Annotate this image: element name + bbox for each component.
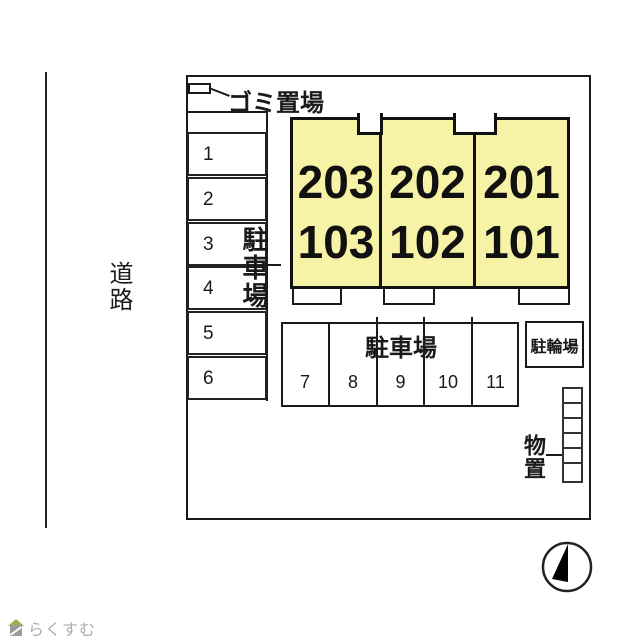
divider-tick xyxy=(376,317,378,323)
parking-space-11: 11 xyxy=(472,372,519,393)
storage-label: 物置 xyxy=(517,434,549,480)
parking-space-9: 9 xyxy=(377,372,424,393)
building-porch xyxy=(518,289,570,305)
divider-tick xyxy=(423,317,425,323)
bicycle-parking-box: 駐輪場 xyxy=(525,321,584,368)
lower-parking-label: 駐車場 xyxy=(331,328,471,363)
unit-number-202: 202 xyxy=(382,158,473,206)
parking-space-8: 8 xyxy=(329,372,377,393)
parking-divider xyxy=(471,323,473,406)
parking-space-10: 10 xyxy=(424,372,472,393)
building-porch xyxy=(383,289,435,305)
parking-space-number: 2 xyxy=(203,189,214,211)
unit-number-101: 101 xyxy=(476,218,567,266)
unit-number-201: 201 xyxy=(476,158,567,206)
road-label: 道路 xyxy=(101,261,136,313)
parking-divider xyxy=(328,323,330,406)
parking-space-6: 6 xyxy=(187,356,267,400)
parking-space-number: 6 xyxy=(203,368,214,390)
parking-space-number: 5 xyxy=(203,323,214,345)
parking-space-number: 1 xyxy=(203,144,214,166)
unit-number-103: 103 xyxy=(293,218,379,266)
logo-text: らくすむ xyxy=(28,616,96,640)
left-parking-label: 駐車場 xyxy=(236,226,273,310)
storage-cell xyxy=(562,462,583,483)
site-plan: 道路 ゴミ置場 1 2 3 4 5 6 駐車場 203 103 202 102 … xyxy=(0,0,640,640)
parking-space-2: 2 xyxy=(187,177,267,221)
site-logo: らくすむ xyxy=(8,616,96,640)
building-entry-notch xyxy=(453,113,497,135)
unit-number-102: 102 xyxy=(382,218,473,266)
parking-space-number: 4 xyxy=(203,278,214,300)
unit-number-203: 203 xyxy=(293,158,379,206)
parking-space-1: 1 xyxy=(187,132,267,176)
building-porch xyxy=(292,289,342,305)
divider-tick xyxy=(471,317,473,323)
building-entry-notch xyxy=(357,113,383,135)
garbage-strip-divider xyxy=(187,111,268,113)
north-compass-icon xyxy=(539,539,595,595)
house-logo-icon xyxy=(8,619,24,637)
parking-space-5: 5 xyxy=(187,311,267,355)
bicycle-parking-label: 駐輪場 xyxy=(530,333,578,357)
parking-space-7: 7 xyxy=(281,372,329,393)
parking-space-number: 3 xyxy=(203,234,214,256)
road-boundary-line xyxy=(45,72,47,528)
